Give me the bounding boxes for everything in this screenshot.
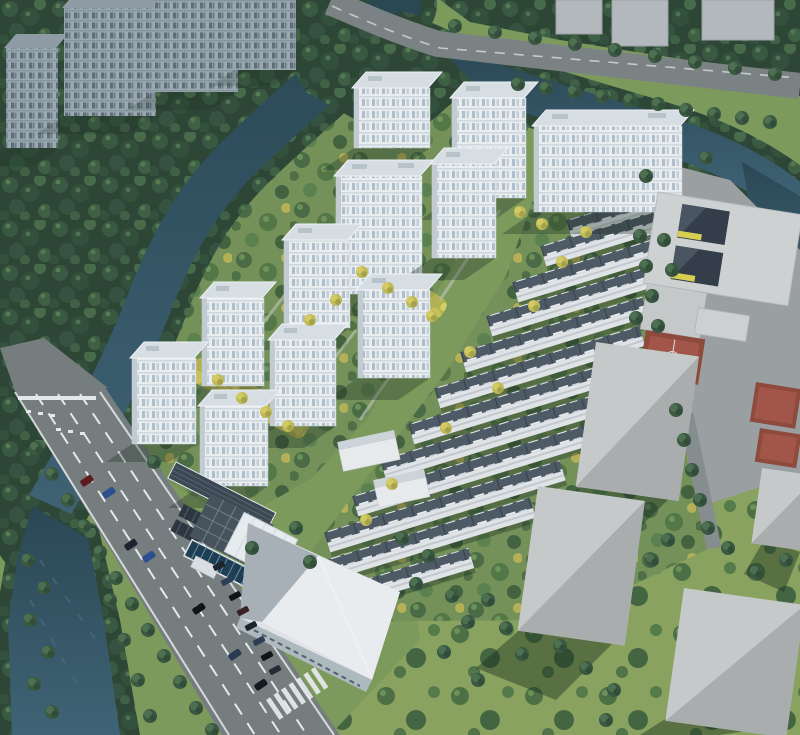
tree — [445, 589, 459, 603]
golden-tree — [528, 300, 540, 312]
tree — [623, 93, 637, 107]
tree — [539, 81, 553, 95]
tree — [37, 581, 51, 595]
tree — [639, 259, 653, 273]
tree — [651, 319, 665, 333]
golden-tree — [356, 266, 368, 278]
tree — [141, 623, 155, 637]
tree — [707, 107, 721, 121]
aerial-rendering — [0, 0, 800, 735]
context-tower — [0, 34, 68, 166]
tree — [567, 85, 581, 99]
tree — [669, 403, 683, 417]
tree — [395, 531, 409, 545]
tree — [131, 673, 145, 687]
tree — [499, 621, 513, 635]
rendering-canvas — [0, 0, 800, 735]
tree — [41, 645, 55, 659]
tree — [481, 593, 495, 607]
tree — [779, 553, 793, 567]
tree — [579, 661, 593, 675]
tree — [735, 111, 749, 125]
tree — [93, 545, 107, 559]
tree — [553, 639, 567, 653]
tree — [645, 289, 659, 303]
tree — [595, 89, 609, 103]
tree — [633, 229, 647, 243]
tree — [768, 67, 782, 81]
golden-tree — [556, 256, 568, 268]
tree — [29, 441, 43, 455]
tree — [27, 677, 41, 691]
tree — [409, 577, 423, 591]
tree — [147, 455, 161, 469]
massing-block — [518, 486, 645, 646]
tree — [189, 701, 203, 715]
tree — [23, 613, 37, 627]
tree — [45, 467, 59, 481]
tree — [461, 615, 475, 629]
tree — [599, 713, 613, 727]
golden-tree — [580, 226, 592, 238]
tree — [688, 55, 702, 69]
tree — [437, 645, 451, 659]
tree — [665, 263, 679, 277]
massing-block — [665, 588, 800, 735]
tree — [677, 433, 691, 447]
golden-tree — [426, 310, 438, 322]
golden-tree — [236, 392, 248, 404]
tree — [651, 97, 665, 111]
tree — [117, 633, 131, 647]
golden-tree — [360, 514, 372, 526]
tree — [289, 521, 303, 535]
tree — [125, 597, 139, 611]
golden-tree — [382, 282, 394, 294]
tree — [608, 43, 622, 57]
sports-court — [750, 382, 800, 429]
tree — [448, 19, 462, 33]
tree — [661, 533, 675, 547]
tree — [679, 103, 693, 117]
tree — [699, 151, 713, 165]
tree — [685, 463, 699, 477]
tree — [45, 705, 59, 719]
context-slab — [612, 0, 668, 46]
golden-tree — [304, 314, 316, 326]
golden-tree — [212, 374, 224, 386]
tree — [421, 549, 435, 563]
tree — [515, 647, 529, 661]
tree — [488, 25, 502, 39]
tree — [648, 49, 662, 63]
tree — [157, 649, 171, 663]
tree — [173, 675, 187, 689]
tree — [693, 493, 707, 507]
golden-tree — [464, 346, 476, 358]
golden-tree — [440, 422, 452, 434]
tree — [511, 77, 525, 91]
context-slab — [702, 0, 774, 40]
tree — [763, 115, 777, 129]
tree — [568, 37, 582, 51]
tree — [109, 571, 123, 585]
tree — [245, 541, 259, 555]
golden-tree — [406, 296, 418, 308]
tree — [728, 61, 742, 75]
golden-tree — [282, 420, 294, 432]
tree — [701, 521, 715, 535]
tree — [143, 709, 157, 723]
golden-tree — [492, 382, 504, 394]
tree — [77, 519, 91, 533]
golden-tree — [514, 206, 526, 218]
tree — [21, 553, 35, 567]
tree — [607, 683, 621, 697]
context-slab — [556, 0, 602, 34]
tree — [103, 593, 117, 607]
tree — [471, 673, 485, 687]
golden-tree — [260, 406, 272, 418]
sports-court — [755, 428, 800, 468]
massing-block — [576, 342, 699, 501]
tree — [749, 565, 763, 579]
tree — [645, 553, 659, 567]
tree — [61, 493, 75, 507]
tree — [657, 233, 671, 247]
golden-tree — [330, 294, 342, 306]
tree — [629, 311, 643, 325]
golden-tree — [386, 478, 398, 490]
tree — [639, 169, 653, 183]
tree — [303, 555, 317, 569]
golden-tree — [536, 218, 548, 230]
tree — [721, 541, 735, 555]
tree — [528, 31, 542, 45]
